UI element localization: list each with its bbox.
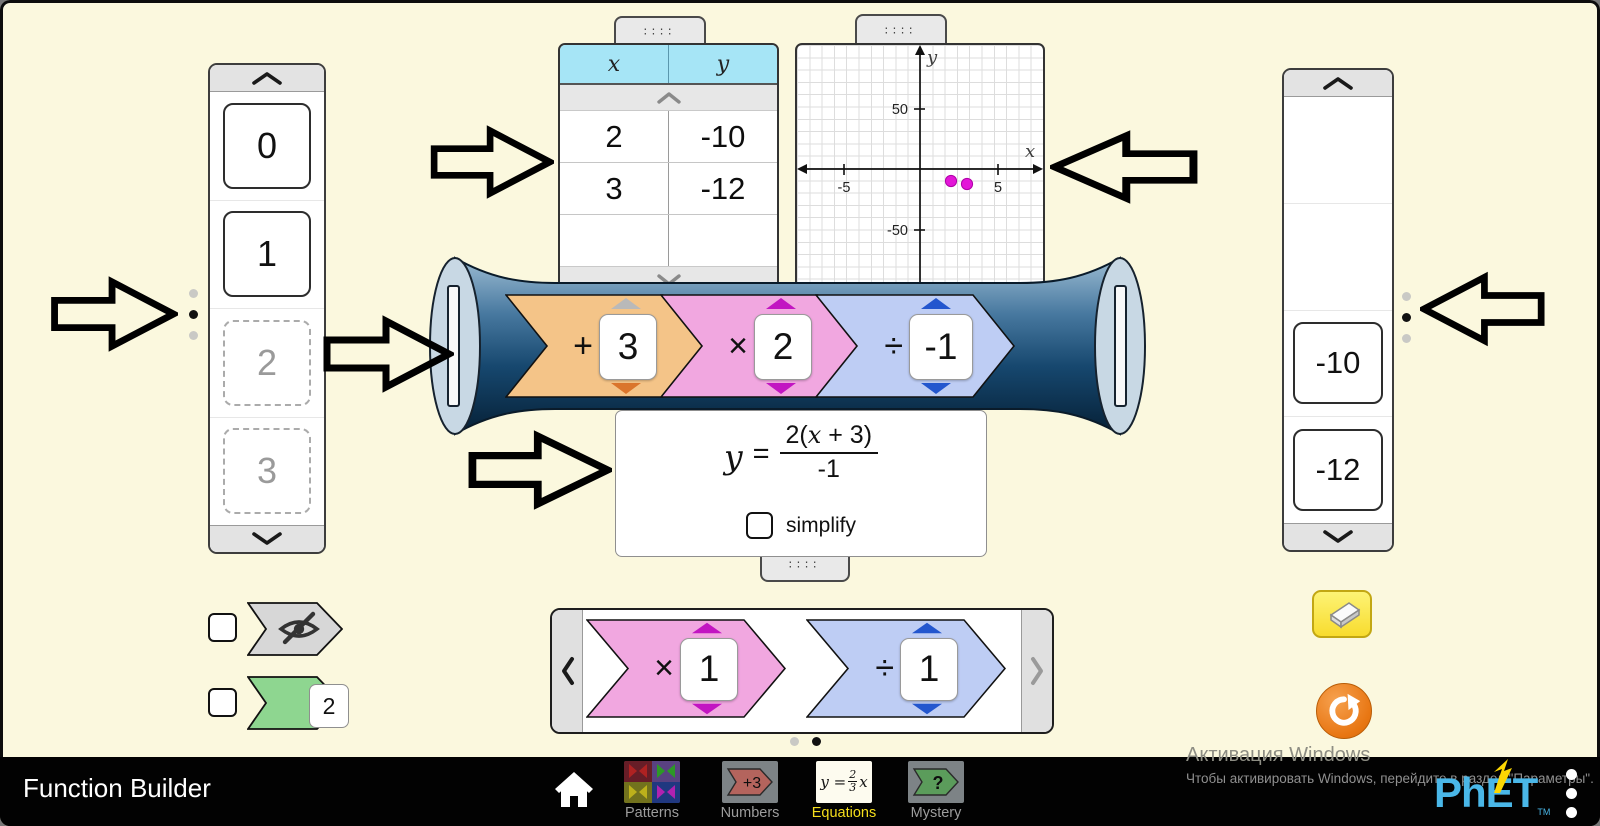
input-carousel-page-dots — [189, 289, 198, 340]
axis-arrowhead — [915, 45, 925, 55]
operator-label: ÷ — [815, 294, 911, 398]
chevron-up-icon — [656, 92, 682, 104]
annotation-arrow-output-carousel — [1420, 271, 1545, 347]
kebab-menu-icon — [1566, 769, 1577, 780]
value-box[interactable]: 1 — [680, 638, 738, 701]
carousel-card-divide-1[interactable]: ÷ 1 — [806, 619, 1006, 718]
table-cell-x: 2 — [560, 111, 669, 162]
page-dot — [790, 737, 799, 746]
x-tick-label: -5 — [838, 180, 851, 196]
equation: y = 2(x + 3) -1 — [616, 425, 986, 488]
page-dot — [1402, 292, 1411, 301]
x-axis-label: x — [1025, 141, 1035, 162]
chevron-up-icon — [250, 71, 284, 85]
mini-card-value: 2 — [323, 693, 336, 720]
empty-slot — [1284, 204, 1392, 311]
simplify-label: simplify — [786, 514, 856, 538]
input-carousel-down-button[interactable] — [210, 525, 324, 552]
reset-all-button[interactable] — [1316, 683, 1372, 739]
table-header-x: x — [560, 45, 669, 83]
table-scroll-up-button[interactable] — [560, 85, 777, 111]
output-card--12[interactable]: -12 — [1293, 429, 1383, 511]
value-box[interactable]: 2 — [754, 314, 812, 380]
operator-label: + — [505, 294, 601, 398]
screen-tab-label: Patterns — [625, 805, 679, 821]
annotation-arrow-input-carousel — [50, 276, 178, 352]
card-value: -12 — [1316, 452, 1361, 488]
see-inside-checkbox[interactable] — [208, 688, 237, 717]
screen-tab-label: Numbers — [721, 805, 780, 821]
x-tick-label: 5 — [994, 180, 1002, 196]
phet-logo-flame-icon — [1490, 759, 1516, 793]
table-cell-y: -10 — [669, 111, 777, 162]
annotation-arrow-graph — [1050, 130, 1198, 204]
value-label: 1 — [699, 648, 720, 690]
screen-tab-patterns[interactable]: Patterns — [614, 761, 690, 821]
page-dot-active — [812, 737, 821, 746]
empty-slot — [1284, 97, 1392, 204]
input-carousel-up-button[interactable] — [210, 65, 324, 92]
number-card-0[interactable]: 0 — [223, 103, 311, 189]
phet-logo: PhETTM — [1434, 769, 1550, 817]
function-carousel-prev-button[interactable] — [552, 610, 583, 732]
value-label: -1 — [925, 326, 958, 368]
card-value: -10 — [1316, 345, 1361, 381]
operator-label: × — [660, 294, 756, 398]
simplify-checkbox[interactable] — [746, 512, 773, 539]
number-card-1[interactable]: 1 — [223, 211, 311, 297]
table-header: x y — [560, 45, 777, 85]
output-carousel-down-button[interactable] — [1284, 523, 1392, 550]
equation-equals: = — [753, 438, 770, 471]
svg-text:+3: +3 — [743, 775, 761, 792]
value-label: 1 — [919, 648, 940, 690]
card-value: 3 — [257, 450, 277, 492]
screen-tab-label: Equations — [812, 805, 877, 821]
axis-arrowhead — [797, 164, 807, 174]
output-card--10[interactable]: -10 — [1293, 322, 1383, 404]
chevron-right-icon — [1030, 656, 1045, 686]
table-row: 2 -10 — [560, 111, 777, 163]
kebab-menu-icon — [1566, 788, 1577, 799]
annotation-arrow-table — [430, 125, 554, 199]
chevron-left-icon — [560, 656, 575, 686]
number-card-2-placeholder: 2 — [223, 320, 311, 406]
value-box[interactable]: 3 — [599, 314, 657, 380]
function-card-divide--1[interactable]: ÷ -1 — [815, 294, 1015, 398]
table-row: 3 -12 — [560, 163, 777, 215]
data-point — [961, 178, 972, 189]
function-carousel-page-dots — [790, 737, 821, 746]
data-point — [945, 175, 956, 186]
function-builder-sim: ∶∶∶∶ ∶∶∶∶ x y 2 -10 3 -12 — [0, 0, 1600, 826]
y-axis-label: y — [926, 47, 938, 68]
carousel-card-times-1[interactable]: × 1 — [586, 619, 786, 718]
home-icon — [553, 770, 595, 808]
page-dot — [189, 331, 198, 340]
windows-activation-watermark: Активация Windows — [1186, 744, 1370, 767]
phet-menu-button[interactable] — [1566, 769, 1577, 818]
drag-dots-icon: ∶∶∶∶ — [885, 24, 918, 38]
equations-icon: y = 23 x — [816, 761, 872, 803]
sim-title: Function Builder — [23, 773, 211, 804]
axis-arrowhead — [1033, 164, 1043, 174]
svg-text:?: ? — [933, 773, 944, 793]
numerator: 2(x + 3) — [780, 421, 879, 454]
kebab-menu-icon — [1566, 807, 1577, 818]
navigation-bar: Function Builder Patterns — [0, 757, 1600, 826]
page-dot-active — [189, 310, 198, 319]
tube-right-slot — [1115, 286, 1126, 406]
eraser-icon — [1321, 599, 1363, 629]
screen-tab-label: Mystery — [911, 805, 962, 821]
operator-label: × — [586, 619, 682, 718]
chevron-down-icon — [1321, 530, 1355, 544]
input-carousel: 0 1 2 3 — [208, 63, 326, 554]
card-value: 2 — [257, 342, 277, 384]
see-inside-mini-card: 2 — [309, 684, 349, 728]
drag-dots-icon: ∶∶∶∶ — [789, 558, 822, 572]
mystery-icon: ? — [908, 761, 964, 803]
chevron-down-icon — [250, 532, 284, 546]
value-box[interactable]: 1 — [900, 638, 958, 701]
output-carousel: -10 -12 — [1282, 68, 1394, 552]
output-carousel-page-dots — [1402, 292, 1411, 343]
home-button[interactable] — [548, 765, 600, 813]
reset-icon — [1326, 693, 1362, 729]
eraser-button[interactable] — [1312, 590, 1372, 638]
operator-label: ÷ — [806, 619, 902, 718]
drag-dots-icon: ∶∶∶∶ — [644, 25, 677, 39]
numbers-icon: +3 — [722, 761, 778, 803]
equation-lhs: y — [724, 437, 743, 476]
table-header-y: y — [669, 45, 777, 83]
output-carousel-up-button[interactable] — [1284, 70, 1392, 97]
table-cell-x: 3 — [560, 163, 669, 214]
screen-tab-mystery[interactable]: ? Mystery — [898, 761, 974, 821]
number-card-3-placeholder: 3 — [223, 428, 311, 514]
equation-panel: y = 2(x + 3) -1 simplify — [615, 410, 987, 557]
function-carousel-next-button[interactable] — [1021, 610, 1052, 732]
hide-functions-checkbox[interactable] — [208, 613, 237, 642]
page-dot — [1402, 334, 1411, 343]
screen-tab-numbers[interactable]: +3 Numbers — [712, 761, 788, 821]
y-tick-label: 50 — [892, 102, 908, 118]
page-dot-active — [1402, 313, 1411, 322]
value-label: 3 — [618, 326, 639, 368]
value-box[interactable]: -1 — [909, 314, 973, 380]
patterns-icon — [624, 761, 680, 803]
chevron-up-icon — [1321, 76, 1355, 90]
hide-functions-card — [247, 602, 343, 656]
card-value: 0 — [257, 125, 277, 167]
equation-fraction: 2(x + 3) -1 — [780, 421, 879, 484]
page-dot — [189, 289, 198, 298]
value-label: 2 — [773, 326, 794, 368]
annotation-arrow-builder-input — [322, 315, 454, 393]
card-value: 1 — [257, 233, 277, 275]
table-cell-y: -12 — [669, 163, 777, 214]
screen-tab-equations[interactable]: y = 23 x Equations — [806, 761, 882, 821]
denominator: -1 — [818, 454, 840, 484]
annotation-arrow-equation — [468, 430, 612, 510]
y-tick-label: -50 — [887, 223, 908, 239]
